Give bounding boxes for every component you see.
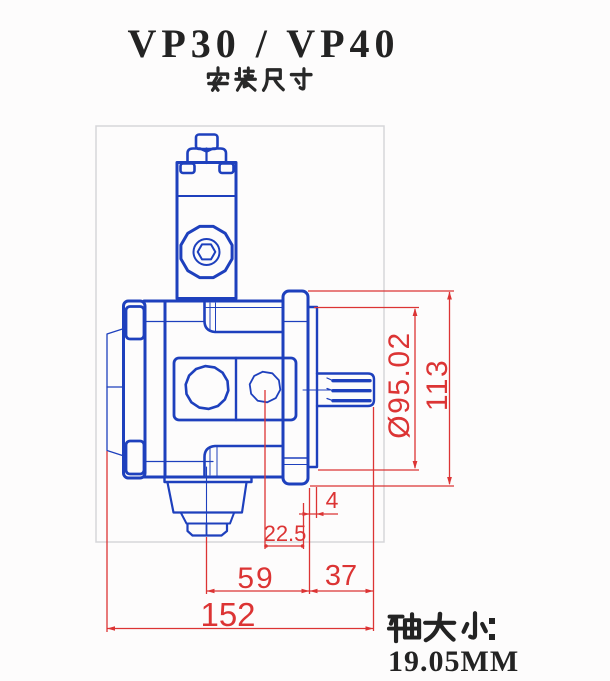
svg-text:4: 4 [326,487,339,513]
svg-text:37: 37 [325,560,357,592]
svg-text:19.05MM: 19.05MM [388,645,519,678]
svg-text:Ø95.02: Ø95.02 [383,331,416,438]
svg-text:22.5: 22.5 [264,521,307,546]
svg-text:113: 113 [421,359,454,411]
svg-text:59: 59 [237,562,274,595]
svg-text:VP30 / VP40: VP30 / VP40 [127,21,399,66]
svg-text:152: 152 [200,596,255,633]
